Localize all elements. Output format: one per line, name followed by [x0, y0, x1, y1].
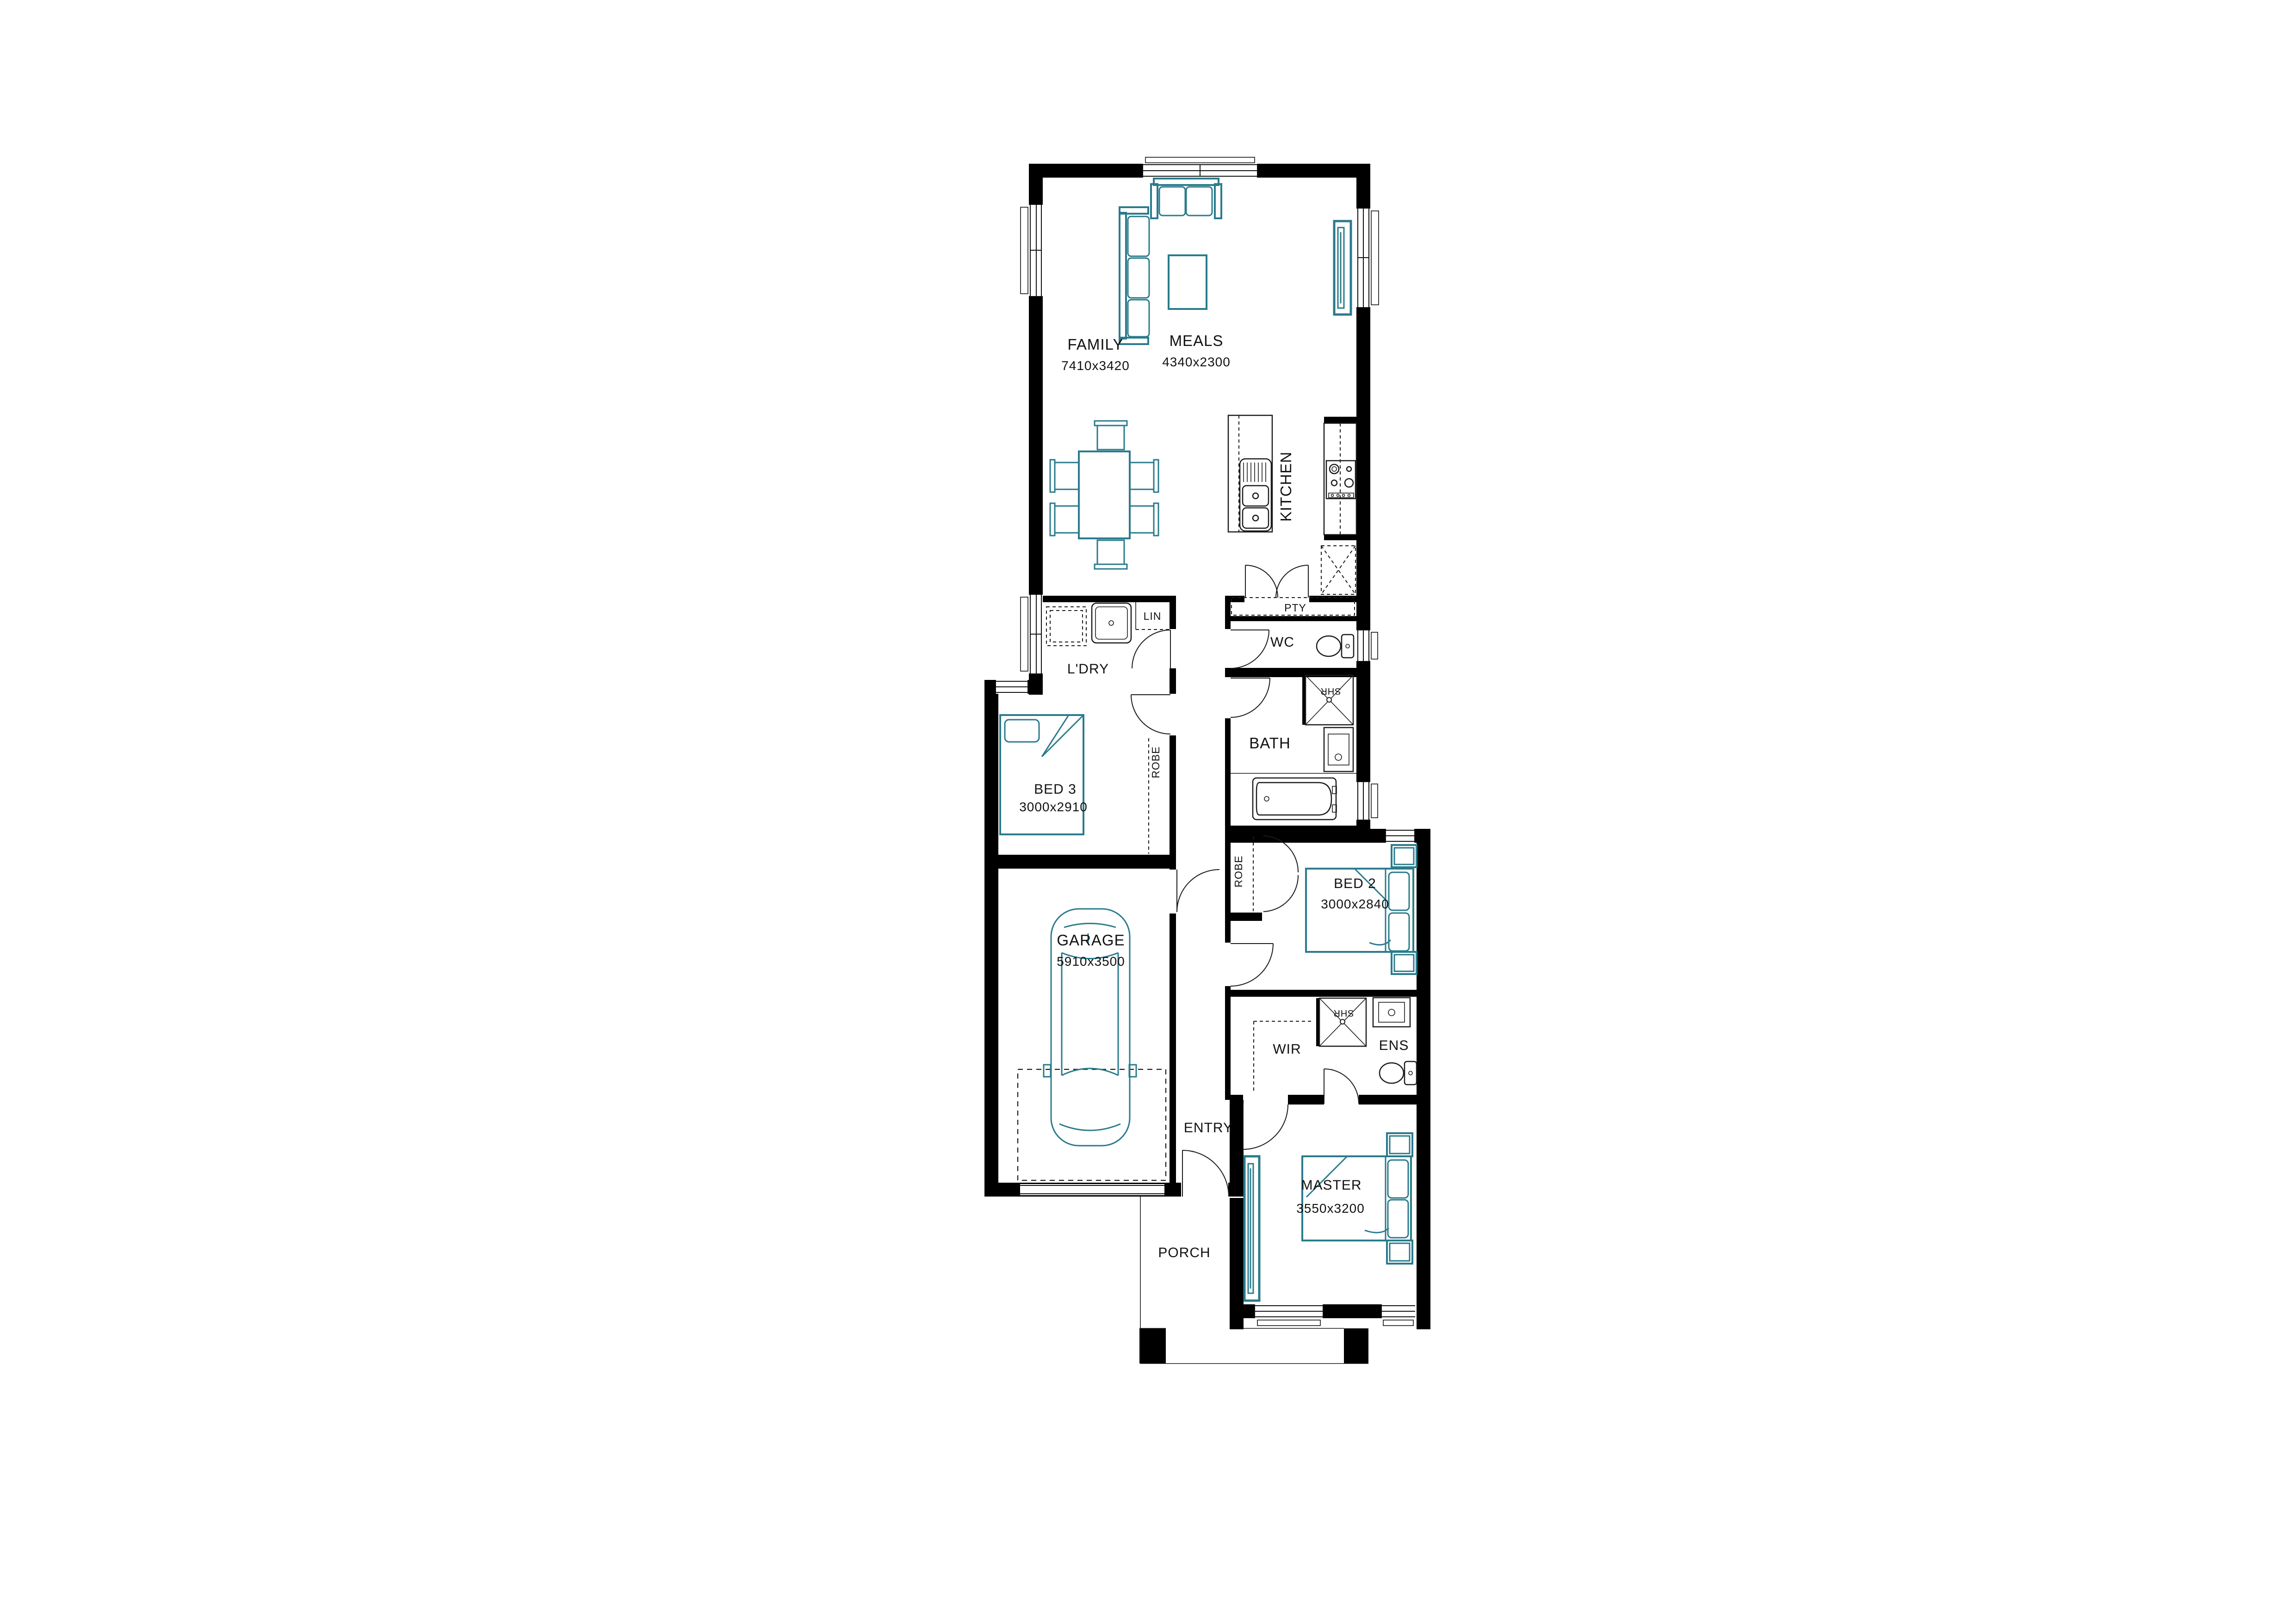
meals-label: MEALS [1170, 332, 1224, 349]
master-label: MASTER [1301, 1178, 1362, 1193]
pantry-label: PTY [1284, 602, 1306, 614]
wir-shelf [1254, 1021, 1313, 1092]
buffet [1334, 221, 1351, 315]
garage-dims: 5910x3500 [1057, 954, 1125, 969]
bed3-door [1131, 695, 1170, 734]
wc-toilet [1317, 635, 1354, 658]
pantry-door-right [1276, 565, 1308, 598]
meals-dims: 4340x2300 [1162, 355, 1231, 369]
master-door [1243, 1105, 1288, 1149]
bed2-label: BED 2 [1334, 876, 1376, 891]
garage-access-door [1177, 870, 1219, 912]
entry-label: ENTRY [1184, 1120, 1233, 1135]
laundry-fixtures [1046, 602, 1170, 646]
robe2-label: ROBE [1232, 855, 1244, 887]
laundry-door [1132, 630, 1170, 668]
bed3-label: BED 3 [1034, 782, 1077, 797]
wc-door [1231, 630, 1269, 668]
bath-door [1231, 678, 1270, 717]
family-sofa [1120, 207, 1149, 344]
fridge-space [1321, 546, 1355, 594]
floorplan-page: { "plan": { "colors": { "wall": "#000000… [0, 0, 2296, 1623]
floor-plan: FAMILY 7410x3420 MEALS 4340x2300 KITCHEN… [962, 153, 1453, 1383]
family-label: FAMILY [1068, 336, 1124, 353]
pantry-door-left [1245, 565, 1278, 598]
front-door [1182, 1150, 1229, 1197]
shr-bath-label: SHR [1320, 686, 1341, 696]
wir-label: WIR [1273, 1042, 1301, 1057]
coffee-table [1169, 255, 1207, 309]
bed3-dims: 3000x2910 [1019, 800, 1088, 814]
master-robe [1244, 1156, 1259, 1301]
ens-door [1324, 1069, 1359, 1104]
kitchen-label: KITCHEN [1277, 451, 1294, 522]
bed2-door [1231, 944, 1273, 986]
robe3-label: ROBE [1150, 746, 1162, 778]
garage-label: GARAGE [1057, 932, 1125, 949]
porch-label: PORCH [1158, 1245, 1210, 1260]
master-bed [1302, 1133, 1412, 1264]
garage-door-recess [1018, 1069, 1166, 1180]
laundry-label: L'DRY [1067, 661, 1109, 677]
master-dims: 3550x3200 [1296, 1201, 1365, 1216]
bed2-dims: 3000x2840 [1321, 897, 1389, 911]
linen-label: LIN [1144, 610, 1162, 622]
kitchen-island [1228, 415, 1272, 532]
dining-table [1050, 421, 1158, 569]
family-dims: 7410x3420 [1061, 358, 1130, 373]
shr-ens-label: SHR [1333, 1008, 1354, 1018]
wc-label: WC [1270, 635, 1294, 650]
bed3-bed [1000, 715, 1083, 834]
meals-sofa [1151, 179, 1221, 218]
doors [1131, 565, 1359, 1197]
bath-label: BATH [1249, 734, 1291, 752]
ens-label: ENS [1379, 1038, 1409, 1053]
robe2-door-right [1263, 875, 1298, 912]
cooktop-bench [1324, 423, 1356, 535]
